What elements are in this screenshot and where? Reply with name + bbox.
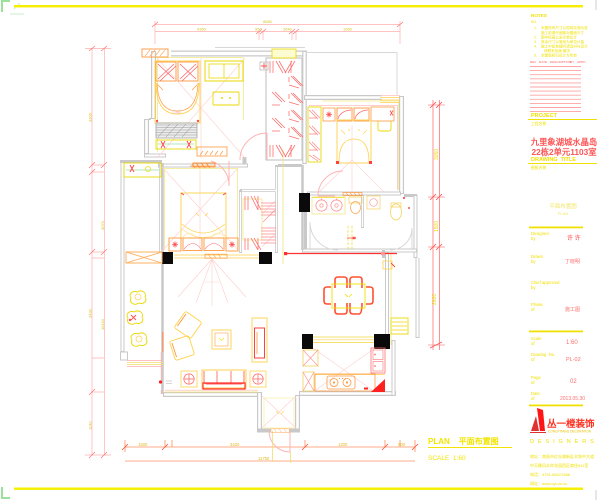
svg-text:5.: 5. (534, 54, 537, 58)
svg-text:施工前请仔细核对图纸尺寸: 施工前请仔细核对图纸尺寸 (541, 30, 585, 35)
svg-text:工程名称: 工程名称 (531, 121, 546, 126)
svg-text:DRAWING TITLE: DRAWING TITLE (531, 157, 576, 163)
svg-text:APPD: APPD (577, 60, 586, 64)
svg-text:本图所有尺寸以现场实测为准: 本图所有尺寸以现场实测为准 (541, 25, 588, 30)
svg-text:PROJECT: PROJECT (531, 113, 558, 119)
svg-text:PL-02: PL-02 (566, 357, 581, 363)
svg-text:by: by (531, 259, 536, 264)
svg-text:3050: 3050 (434, 149, 440, 160)
svg-text:SCALE 1:60: SCALE 1:60 (428, 455, 466, 462)
svg-text:本图版权归设计方所有: 本图版权归设计方所有 (541, 53, 577, 58)
svg-text:1.8M: 1.8M (172, 110, 181, 115)
svg-text:900: 900 (398, 442, 406, 447)
svg-text:1:60: 1:60 (566, 340, 578, 346)
svg-text:of: of (531, 380, 535, 385)
svg-text:图中标高以米为单位计: 图中标高以米为单位计 (541, 35, 577, 40)
svg-text:3300: 3300 (88, 112, 93, 122)
svg-text:BY: BY (570, 60, 574, 64)
svg-text:3070: 3070 (100, 220, 105, 230)
svg-text:1950: 1950 (343, 27, 353, 32)
svg-text:8680: 8680 (263, 19, 273, 24)
svg-text:电话：0791-86221588: 电话：0791-86221588 (530, 471, 571, 477)
svg-text:其余尺寸以毫米为单位计量: 其余尺寸以毫米为单位计量 (541, 39, 585, 44)
svg-text:by: by (531, 285, 536, 290)
svg-text:PLAN: PLAN (558, 211, 569, 216)
svg-text:D E S I G N E R S: D E S I G N E R S (530, 439, 595, 445)
svg-text:中天椰风水岸花园西区商住611室: 中天椰风水岸花园西区商住611室 (530, 462, 588, 468)
svg-text:网址：www.cyt-zs.cn: 网址：www.cyt-zs.cn (530, 480, 567, 486)
svg-text:2013.05.30: 2013.05.30 (560, 396, 585, 402)
svg-text:2920: 2920 (432, 294, 438, 305)
svg-text:of: of (531, 307, 535, 312)
svg-text:4350: 4350 (197, 27, 207, 32)
svg-text:丁晓明: 丁晓明 (565, 258, 580, 265)
svg-text:DATE: DATE (539, 60, 547, 64)
svg-text:九里象湖城水晶岛: 九里象湖城水晶岛 (530, 137, 597, 147)
svg-text:22栋2单元1103室: 22栋2单元1103室 (531, 147, 597, 157)
svg-text:NO.: NO. (531, 20, 537, 24)
svg-text:3420: 3420 (230, 442, 240, 447)
svg-text:02: 02 (570, 379, 577, 385)
svg-text:of: of (531, 357, 535, 362)
svg-text:11750: 11750 (258, 456, 270, 461)
svg-text:1500: 1500 (434, 221, 440, 232)
svg-text:950: 950 (255, 27, 262, 32)
svg-text:师联系协商 解决: 师联系协商 解决 (544, 48, 571, 53)
svg-text:Drawing No.: Drawing No. (531, 352, 555, 357)
svg-text:地址：南昌市红谷滩新区丰和中大道: 地址：南昌市红谷滩新区丰和中大道 (530, 453, 594, 459)
svg-text:丛一樘装饰: 丛一樘装饰 (547, 418, 595, 430)
svg-text:2.: 2. (534, 36, 537, 40)
svg-text:NOTES: NOTES (531, 13, 547, 18)
svg-text:2640: 2640 (283, 27, 293, 32)
svg-text:DESCRIPTION: DESCRIPTION (550, 60, 571, 64)
svg-text:1500: 1500 (138, 442, 148, 447)
svg-text:4.: 4. (534, 45, 537, 49)
svg-text:REV: REV (530, 60, 537, 64)
svg-text:平面布置图: 平面布置图 (549, 202, 577, 210)
svg-text:施工图: 施工图 (565, 306, 580, 313)
svg-text:图纸名称: 图纸名称 (531, 165, 546, 170)
svg-text:CONGYITANG DECORATION: CONGYITANG DECORATION (548, 430, 592, 434)
svg-text:3.: 3. (534, 40, 537, 44)
svg-text:3430: 3430 (88, 308, 93, 318)
svg-text:of: of (531, 341, 535, 346)
svg-text:by: by (531, 236, 536, 241)
svg-text:许 许: 许 许 (567, 234, 581, 242)
svg-text:PLAN 平面布置图: PLAN 平面布置图 (428, 436, 499, 446)
svg-text:of: of (531, 396, 535, 401)
svg-text:11340: 11340 (100, 318, 105, 330)
svg-text:1200: 1200 (338, 442, 348, 447)
svg-text:1.: 1. (534, 26, 537, 30)
svg-text:施工中如有疑问请及时与设计: 施工中如有疑问请及时与设计 (541, 44, 588, 49)
svg-text:1140: 1140 (88, 421, 93, 430)
